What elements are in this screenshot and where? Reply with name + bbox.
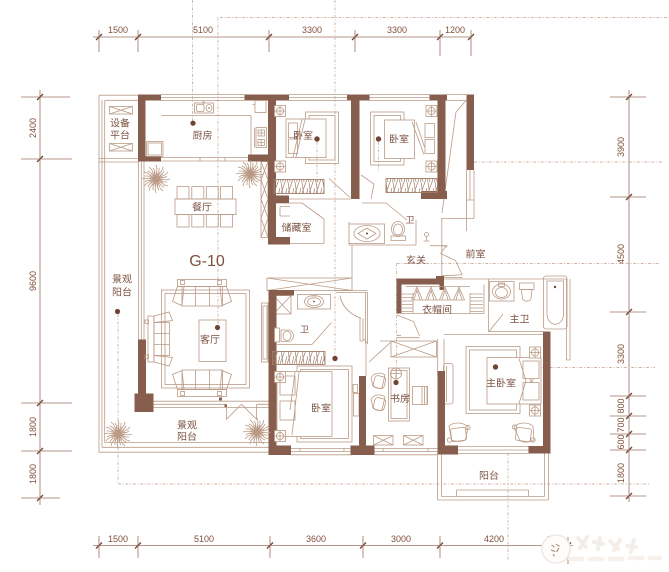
svg-text:1800: 1800: [28, 464, 38, 484]
svg-text:3000: 3000: [391, 534, 411, 544]
svg-text:5100: 5100: [193, 25, 213, 35]
svg-text:3300: 3300: [616, 344, 626, 364]
svg-text:3300: 3300: [387, 25, 407, 35]
svg-text:3900: 3900: [616, 137, 626, 157]
svg-text:600: 600: [616, 434, 626, 449]
svg-text:700: 700: [616, 417, 626, 432]
svg-text:1800: 1800: [28, 417, 38, 437]
svg-text:5100: 5100: [194, 534, 214, 544]
svg-text:1200: 1200: [445, 25, 465, 35]
svg-text:3600: 3600: [306, 534, 326, 544]
svg-text:4200: 4200: [484, 534, 504, 544]
svg-text:3300: 3300: [302, 25, 322, 35]
svg-text:2400: 2400: [28, 118, 38, 138]
svg-text:4500: 4500: [616, 244, 626, 264]
svg-text:1500: 1500: [108, 25, 128, 35]
svg-text:G-10: G-10: [189, 253, 225, 270]
svg-text:9600: 9600: [28, 271, 38, 291]
svg-text:1800: 1800: [616, 463, 626, 483]
svg-text:800: 800: [616, 398, 626, 413]
svg-text:1500: 1500: [108, 534, 128, 544]
